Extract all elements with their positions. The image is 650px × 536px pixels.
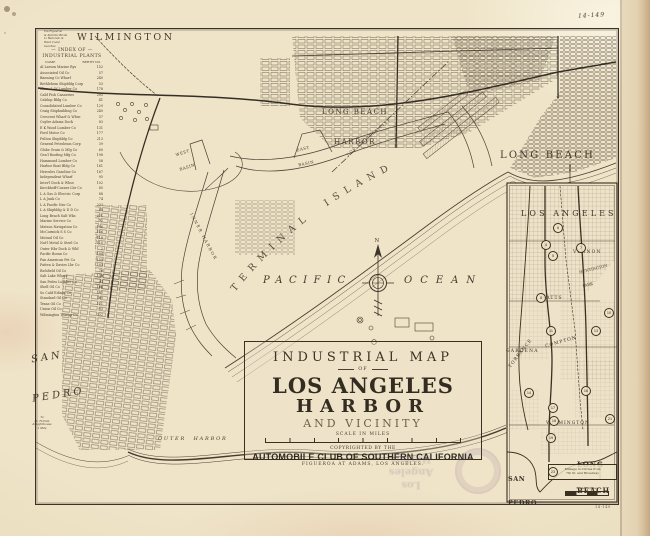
plate-number: 14-149 <box>595 505 611 509</box>
map-neatline-border <box>35 28 619 505</box>
